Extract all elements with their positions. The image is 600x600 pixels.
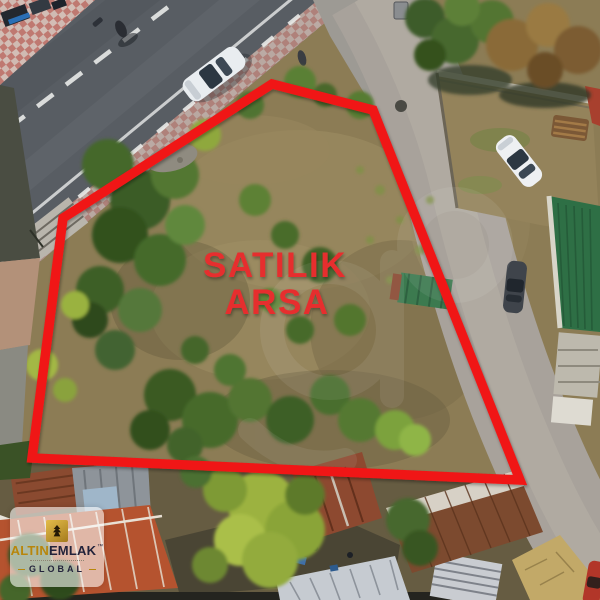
property-label: SATILIK ARSA: [203, 246, 347, 322]
label-arsa: ARSA: [224, 283, 329, 322]
logo-flourish-right: [89, 569, 96, 570]
listing-photo-frame: SATILIK ARSA ALTINEMLAK™ GLOBAL: [0, 0, 600, 600]
logo-flourish-left: [18, 569, 25, 570]
logo-tagline-rule: [30, 560, 84, 561]
trademark-symbol: ™: [97, 544, 103, 550]
altin-emlak-crest-icon: [46, 520, 68, 542]
green-roof-building: [549, 196, 600, 332]
brand-gold: ALTIN: [11, 544, 49, 557]
manhole-cover: [395, 100, 407, 112]
sub-brand-label: GLOBAL: [29, 564, 85, 574]
agency-wordmark: ALTINEMLAK™: [11, 544, 104, 557]
agency-logo: ALTINEMLAK™ GLOBAL: [10, 507, 104, 587]
brand-dark: EMLAK: [49, 544, 96, 557]
label-satilik: SATILIK: [203, 246, 347, 285]
sub-brand-row: GLOBAL: [18, 564, 96, 574]
